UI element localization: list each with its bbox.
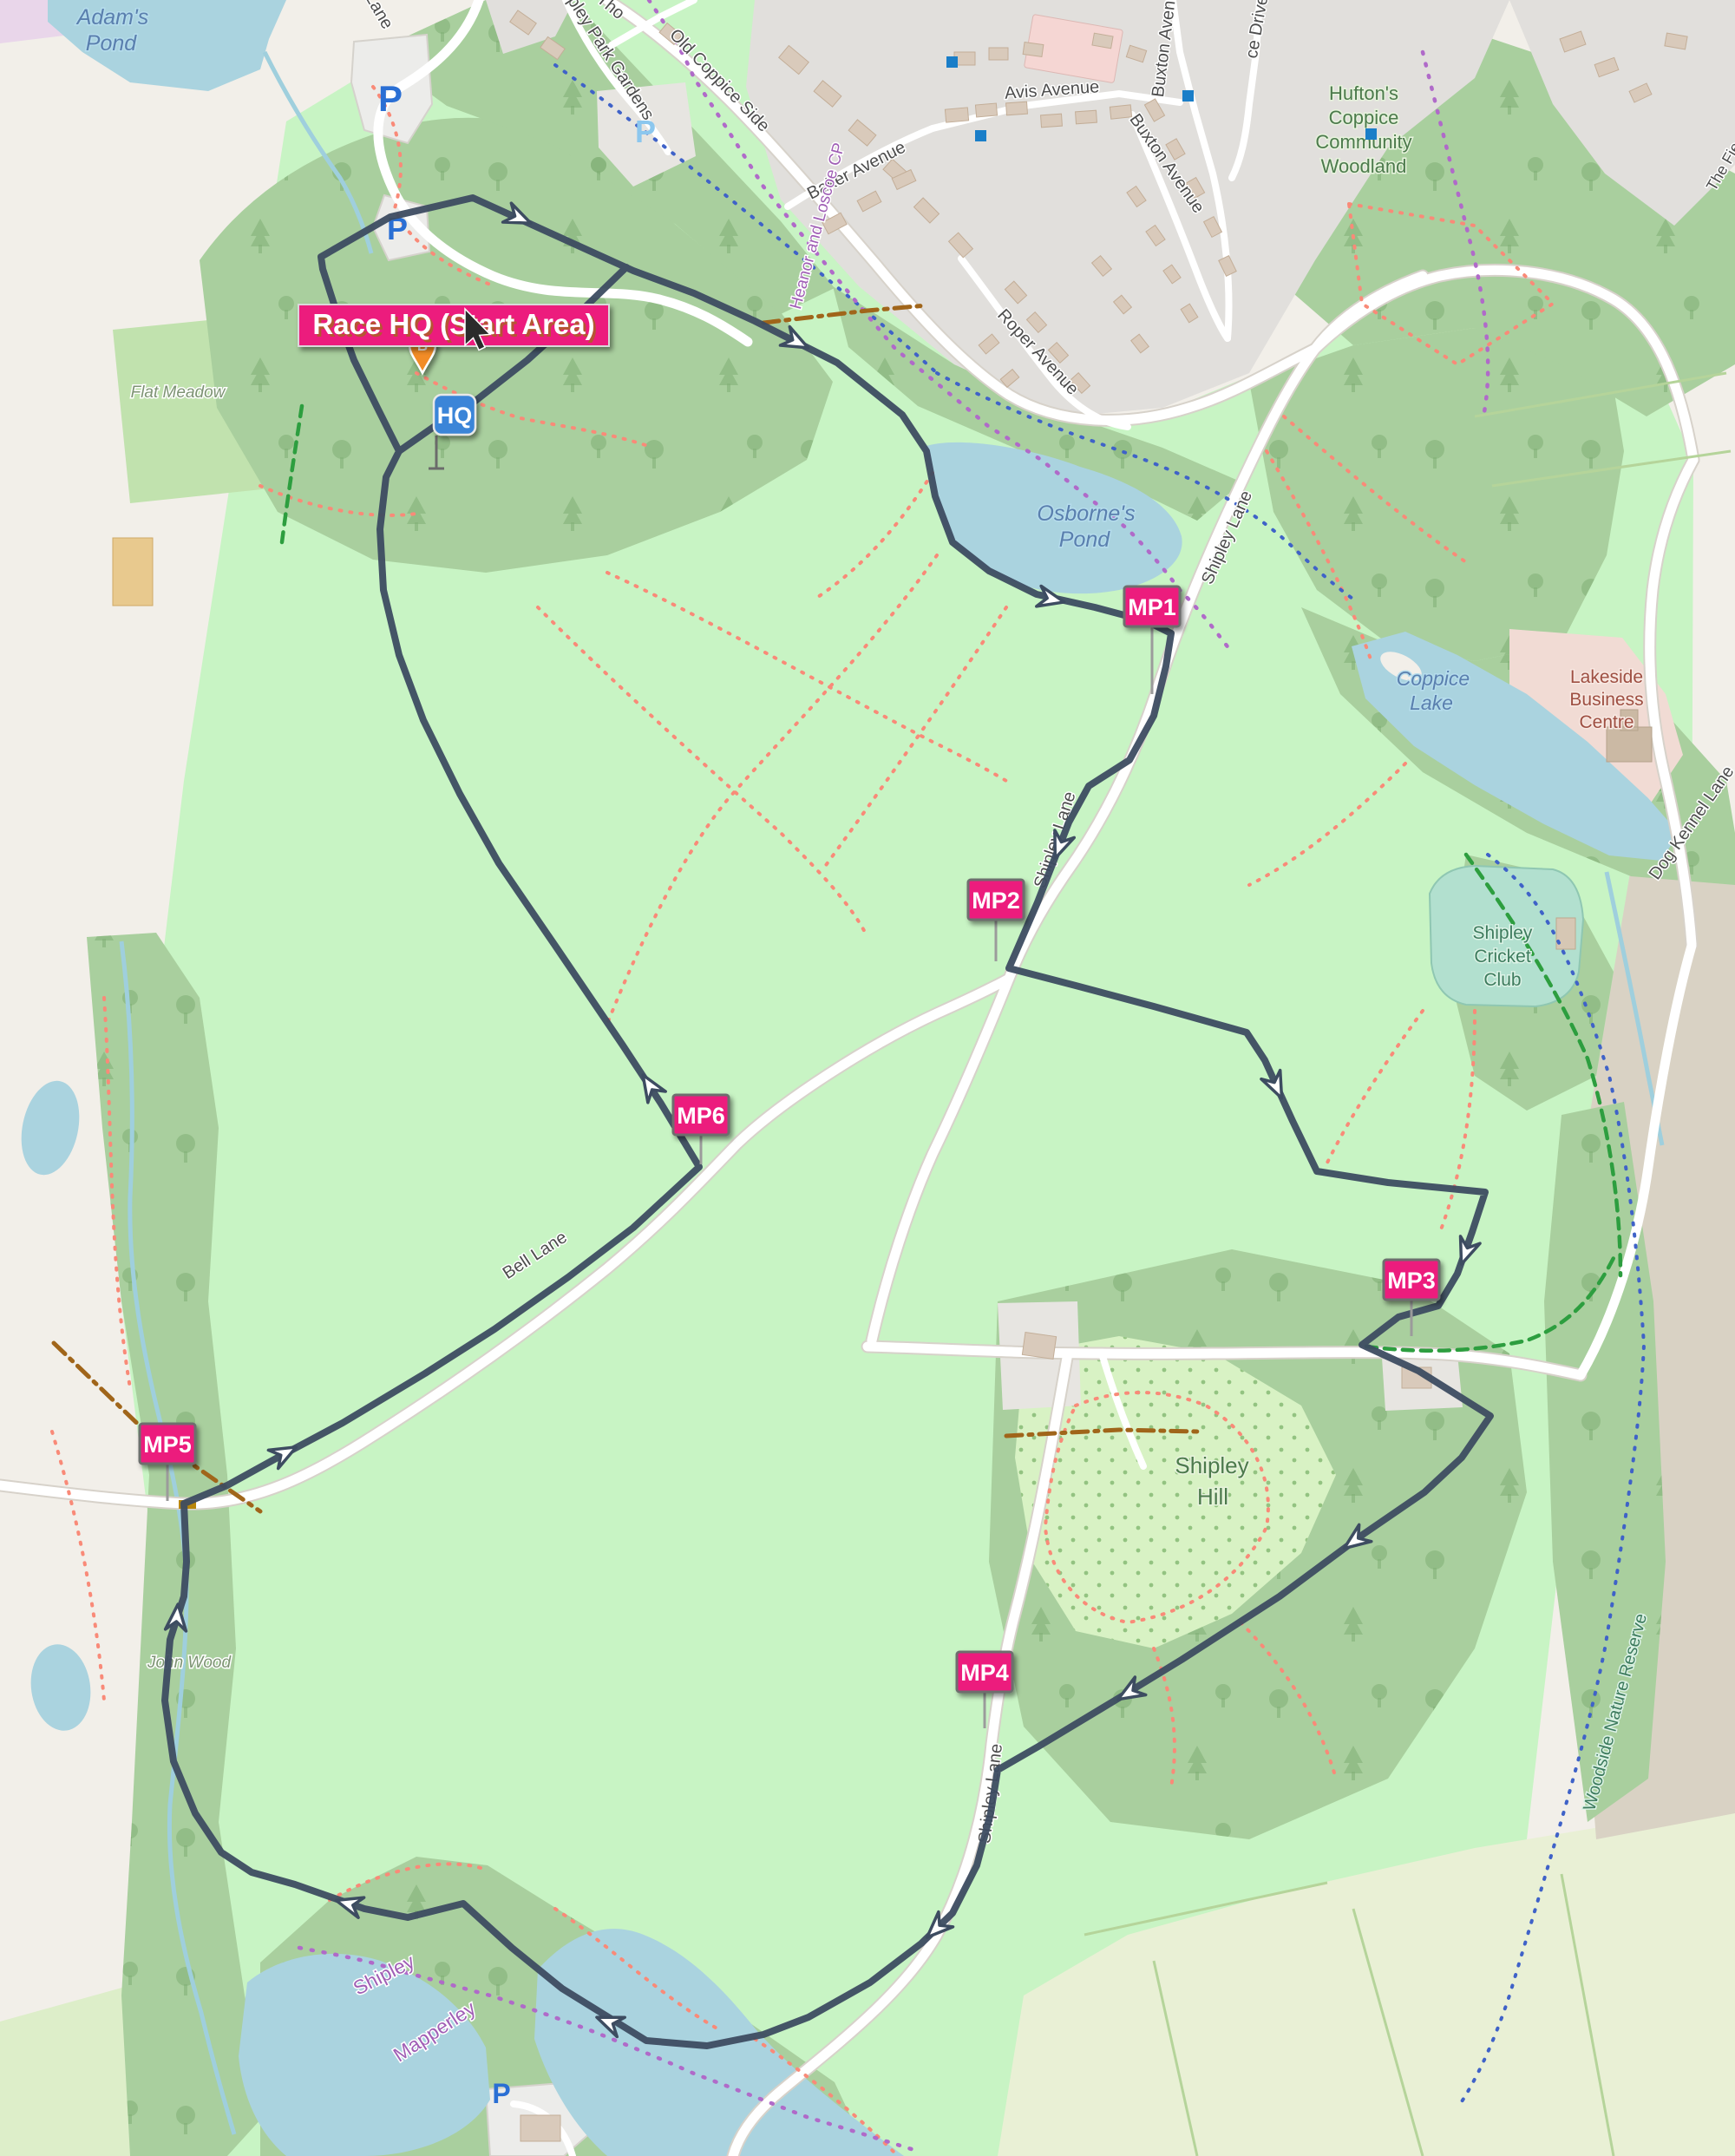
parking-icon: P [378,78,403,119]
bus-stop-icon [946,56,958,68]
building [1076,110,1097,124]
building-farm-west [113,538,153,606]
marker-badge-mp6[interactable]: MP6 [673,1095,729,1135]
building-south-carpark [520,2115,560,2141]
marker-badge-mp5[interactable]: MP5 [140,1424,195,1464]
marker-label-mp5: MP5 [143,1432,192,1458]
label-huftons-3: Community [1315,131,1411,153]
hq-icon-text: HQ [437,403,473,429]
marker-label-mp3: MP3 [1387,1268,1436,1294]
label-osbornes-pond-2: Pond [1059,528,1110,552]
building-carpark-hut [1022,1333,1056,1360]
label-lakeside-3: Centre [1579,712,1634,732]
building [945,108,968,122]
building [1041,114,1063,128]
label-shipley-hill-2: Hill [1197,1484,1228,1510]
label-shipley-hill-1: Shipley [1175,1452,1248,1478]
label-cricket-2: Cricket [1474,947,1531,967]
bus-stop-icon [1182,90,1194,102]
building [1023,43,1044,57]
marker-label-mp4: MP4 [960,1660,1009,1686]
building [975,103,997,117]
label-adams-pond-2: Pond [86,31,137,56]
map-canvas[interactable]: Adam's Pond Shipley Park Gardens Slack L… [0,0,1735,2156]
label-coppice-lake-2: Lake [1410,691,1453,714]
marker-badge-mp4[interactable]: MP4 [957,1652,1012,1692]
label-adams-pond-1: Adam's [75,5,149,29]
marker-badge-mp2[interactable]: MP2 [968,880,1024,920]
hq-icon[interactable]: HQ [434,395,475,435]
building [1006,102,1028,115]
map-viewport[interactable]: Adam's Pond Shipley Park Gardens Slack L… [0,0,1735,2156]
label-huftons-2: Coppice [1329,107,1399,128]
marker-badge-mp1[interactable]: MP1 [1124,587,1180,626]
label-huftons-4: Woodland [1321,155,1407,177]
label-lakeside-2: Business [1569,690,1643,710]
label-coppice-lake-1: Coppice [1397,667,1470,690]
label-osbornes-pond-1: Osborne's [1037,501,1135,526]
building [1110,105,1131,119]
building [989,48,1008,60]
label-cricket-3: Club [1483,970,1521,990]
parking-icon: P [492,2078,510,2109]
label-john-wood: John Wood [147,1654,232,1672]
race-hq-label[interactable]: Race HQ (Start Area) Race HQ (Start Area… [298,305,609,346]
label-flat-meadow: Flat Meadow [131,383,226,402]
label-lakeside-1: Lakeside [1570,667,1643,687]
marker-badge-mp3[interactable]: MP3 [1384,1260,1439,1300]
bus-stop-icon [1365,128,1377,140]
parking-private-icon: P [635,114,656,149]
marker-label-mp1: MP1 [1128,594,1176,620]
marker-label-mp6: MP6 [677,1103,725,1129]
race-hq-label-text: Race HQ (Start Area) [312,308,594,340]
label-huftons-1: Hufton's [1329,82,1398,104]
bus-stop-icon [975,130,986,141]
label-cricket-1: Shipley [1473,923,1533,943]
marker-label-mp2: MP2 [972,888,1020,914]
